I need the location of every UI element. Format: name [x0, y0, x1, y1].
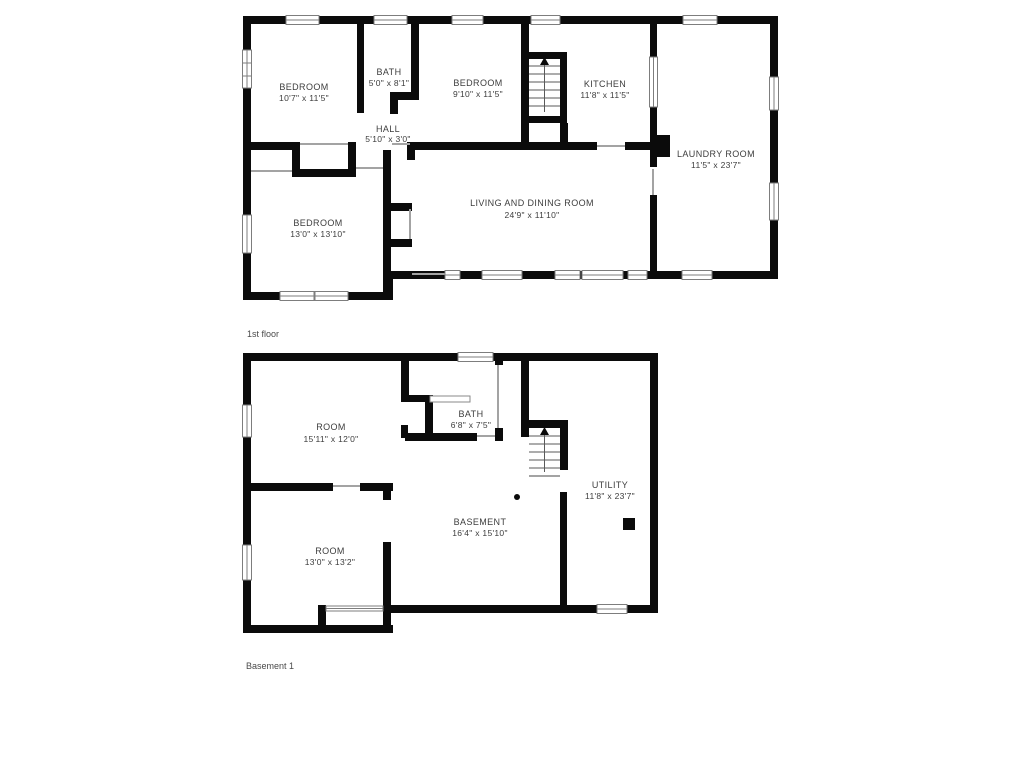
room-dims: 13'0" x 13'10" [290, 229, 346, 239]
door-opening [529, 475, 560, 477]
wall [650, 107, 657, 137]
window [682, 271, 712, 280]
room-name: LIVING AND DINING ROOM [470, 198, 594, 208]
door-opening [409, 209, 411, 239]
window [452, 16, 483, 25]
wall [292, 169, 356, 177]
wall [412, 142, 562, 150]
wall [411, 24, 419, 92]
room-label-bath-basement: BATH 6'8" x 7'5" [451, 409, 491, 430]
room-dims: 10'7" x 11'5" [279, 93, 329, 103]
wall [625, 142, 652, 150]
room-label-hall: HALL 5'10" x 3'0" [365, 124, 411, 144]
wall [770, 16, 778, 279]
room-name: HALL [376, 124, 400, 134]
window [531, 16, 560, 25]
wall [405, 433, 477, 441]
room-label-kitchen: KITCHEN 11'8" x 11'5" [580, 79, 629, 100]
first-floor-openings [251, 143, 654, 275]
window [458, 353, 493, 362]
wall [383, 542, 391, 633]
support-column [514, 494, 520, 500]
room-name: KITCHEN [584, 79, 626, 89]
room-dims: 13'0" x 13'2" [305, 557, 356, 567]
wall [650, 157, 657, 167]
wall [562, 142, 597, 150]
room-label-bath: BATH 5'0" x 8'1" [369, 67, 409, 88]
wall [650, 353, 658, 613]
chimney-block [650, 135, 670, 157]
room-dims: 9'10" x 11'5" [453, 89, 503, 99]
window [243, 405, 252, 437]
door-opening [652, 169, 654, 195]
door-opening [597, 145, 625, 147]
room-name: UTILITY [592, 480, 628, 490]
furnace-block [623, 518, 635, 530]
window [243, 215, 252, 253]
window [683, 16, 717, 25]
window [326, 606, 383, 611]
room-name: BEDROOM [293, 218, 342, 228]
wall [383, 150, 391, 292]
window [650, 57, 658, 107]
room-name: BATH [459, 409, 484, 419]
window [445, 271, 460, 280]
room-dims: 5'10" x 3'0" [365, 134, 411, 144]
window [280, 292, 314, 301]
room-label-laundry-room: LAUNDRY ROOM 11'5" x 23'7" [677, 149, 755, 170]
window [243, 545, 252, 580]
room-label-bedroom-1: BEDROOM 10'7" x 11'5" [279, 82, 329, 103]
room-dims: 16'4" x 15'10" [452, 528, 508, 538]
window [770, 183, 779, 220]
basement-title: Basement 1 [246, 661, 294, 671]
wall [390, 239, 412, 247]
wall [243, 142, 300, 150]
room-label-room-lower: ROOM 13'0" x 13'2" [305, 546, 356, 567]
room-dims: 11'5" x 23'7" [691, 160, 741, 170]
room-label-basement-room: BASEMENT 16'4" x 15'10" [452, 517, 508, 538]
room-dims: 11'8" x 11'5" [580, 90, 629, 100]
wall [495, 353, 503, 365]
room-label-utility: UTILITY 11'8" x 23'7" [585, 480, 635, 501]
wall [521, 24, 529, 142]
wall [495, 428, 503, 441]
window [482, 271, 522, 280]
wall [560, 52, 567, 123]
wall [650, 16, 657, 57]
room-label-bedroom-2: BEDROOM 9'10" x 11'5" [453, 78, 503, 99]
wall [650, 195, 657, 279]
room-name: ROOM [316, 422, 346, 432]
wall [243, 483, 333, 491]
wall [357, 24, 364, 113]
window [770, 77, 779, 110]
window [555, 271, 580, 280]
floor-plan-page: BEDROOM 10'7" x 11'5" BATH 5'0" x 8'1" B… [0, 0, 1024, 768]
wall [521, 116, 567, 123]
window [315, 292, 348, 301]
room-label-room-upper: ROOM 15'11" x 12'0" [304, 422, 359, 444]
room-name: ROOM [315, 546, 345, 556]
room-name: BASEMENT [454, 517, 507, 527]
room-name: BEDROOM [453, 78, 502, 88]
door-opening [477, 435, 495, 437]
wall [560, 420, 568, 470]
window [597, 605, 627, 614]
basement-stairs [529, 427, 560, 472]
wall [390, 92, 419, 100]
room-dims: 15'11" x 12'0" [304, 434, 359, 444]
room-name: BATH [377, 67, 402, 77]
floor-plan-canvas: BEDROOM 10'7" x 11'5" BATH 5'0" x 8'1" B… [0, 0, 1024, 768]
bath-counter [430, 396, 470, 402]
first-floor-title: 1st floor [247, 329, 279, 339]
wall [390, 100, 398, 114]
room-dims: 11'8" x 23'7" [585, 491, 635, 501]
wall [383, 483, 391, 500]
room-label-bedroom-3: BEDROOM 13'0" x 13'10" [290, 218, 346, 239]
wall [560, 492, 567, 605]
door-opening [356, 167, 383, 169]
wall [318, 605, 326, 627]
window [374, 16, 407, 25]
window [286, 16, 319, 25]
wall [401, 353, 409, 398]
room-name: LAUNDRY ROOM [677, 149, 755, 159]
door-opening [497, 365, 499, 428]
room-dims: 5'0" x 8'1" [369, 78, 409, 88]
room-dims: 24'9" x 11'10" [505, 210, 560, 220]
wall [390, 203, 412, 211]
wall [243, 353, 251, 633]
window [628, 271, 647, 280]
window [582, 271, 623, 280]
room-name: BEDROOM [279, 82, 328, 92]
basement-room-labels: ROOM 15'11" x 12'0" BATH 6'8" x 7'5" UTI… [304, 409, 635, 567]
door-opening [251, 170, 292, 172]
wall [243, 353, 658, 361]
stairs-up-arrow-icon [540, 427, 549, 435]
basement-plan: ROOM 15'11" x 12'0" BATH 6'8" x 7'5" UTI… [243, 353, 659, 672]
first-floor-stairs [529, 57, 560, 112]
room-dims: 6'8" x 7'5" [451, 420, 491, 430]
door-opening [300, 143, 348, 145]
room-label-living-dining: LIVING AND DINING ROOM 24'9" x 11'10" [470, 198, 594, 220]
door-opening [412, 273, 445, 275]
first-floor-plan: BEDROOM 10'7" x 11'5" BATH 5'0" x 8'1" B… [243, 16, 779, 340]
door-opening [333, 485, 360, 487]
window [243, 50, 252, 88]
